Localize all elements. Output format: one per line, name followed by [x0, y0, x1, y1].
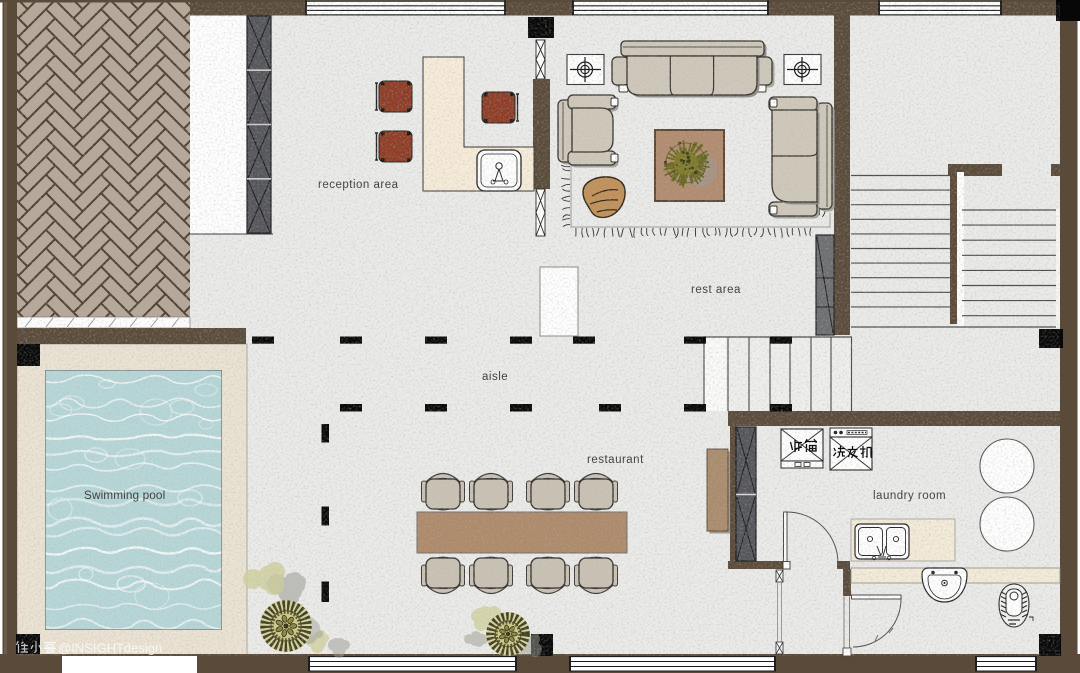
svg-text:@INSIGHTdesign: @INSIGHTdesign	[58, 641, 162, 656]
